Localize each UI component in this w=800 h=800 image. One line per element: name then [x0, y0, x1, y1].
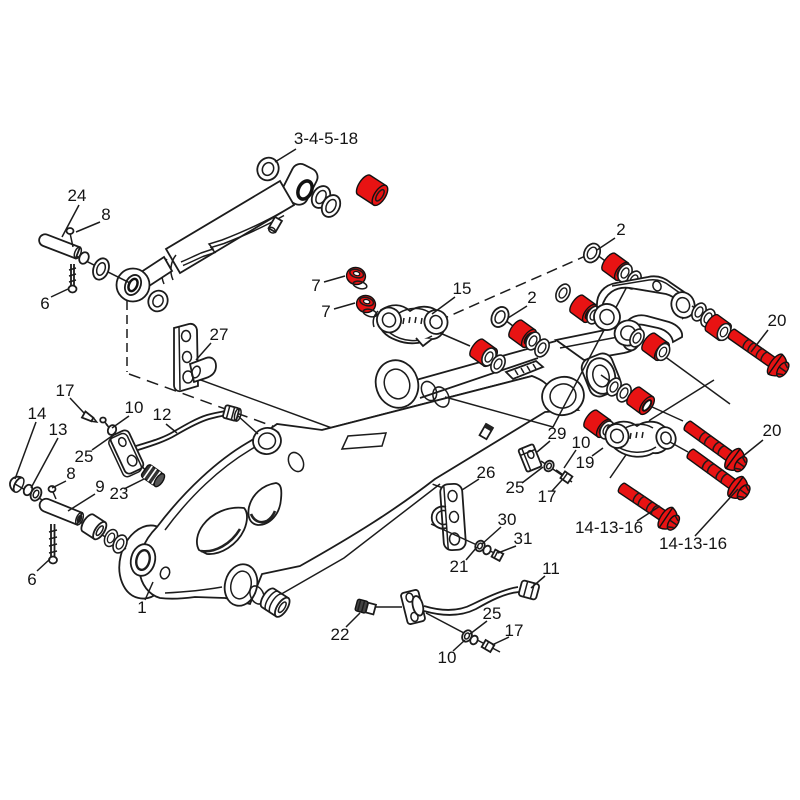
svg-text:31: 31 — [514, 529, 533, 548]
svg-text:1: 1 — [137, 598, 146, 617]
svg-text:10: 10 — [572, 433, 591, 452]
svg-text:17: 17 — [56, 381, 75, 400]
svg-text:17: 17 — [538, 487, 557, 506]
svg-text:13: 13 — [49, 420, 68, 439]
svg-text:7: 7 — [321, 302, 330, 321]
svg-text:8: 8 — [66, 464, 75, 483]
svg-text:14-13-16: 14-13-16 — [575, 518, 643, 537]
svg-text:30: 30 — [498, 510, 517, 529]
svg-text:2: 2 — [616, 220, 625, 239]
svg-text:25: 25 — [483, 604, 502, 623]
svg-text:11: 11 — [542, 559, 560, 578]
svg-text:2: 2 — [527, 288, 536, 307]
svg-text:14: 14 — [28, 404, 47, 423]
svg-text:24: 24 — [68, 186, 87, 205]
svg-text:21: 21 — [450, 557, 469, 576]
svg-text:25: 25 — [506, 478, 525, 497]
svg-text:20: 20 — [768, 311, 787, 330]
svg-text:15: 15 — [453, 279, 472, 298]
svg-text:20: 20 — [763, 421, 782, 440]
svg-text:10: 10 — [438, 648, 457, 667]
svg-text:26: 26 — [477, 463, 496, 482]
svg-text:25: 25 — [75, 447, 94, 466]
svg-text:27: 27 — [210, 325, 229, 344]
svg-text:23: 23 — [110, 484, 129, 503]
svg-text:22: 22 — [331, 625, 350, 644]
svg-text:12: 12 — [153, 405, 172, 424]
svg-text:3-4-5-18: 3-4-5-18 — [294, 129, 358, 148]
svg-text:6: 6 — [27, 570, 36, 589]
svg-text:6: 6 — [40, 294, 49, 313]
svg-text:29: 29 — [548, 424, 567, 443]
svg-text:19: 19 — [576, 453, 595, 472]
svg-text:8: 8 — [101, 205, 110, 224]
svg-text:10: 10 — [125, 398, 144, 417]
svg-text:7: 7 — [311, 276, 320, 295]
svg-text:17: 17 — [505, 621, 524, 640]
svg-text:9: 9 — [95, 477, 104, 496]
svg-text:14-13-16: 14-13-16 — [659, 534, 727, 553]
